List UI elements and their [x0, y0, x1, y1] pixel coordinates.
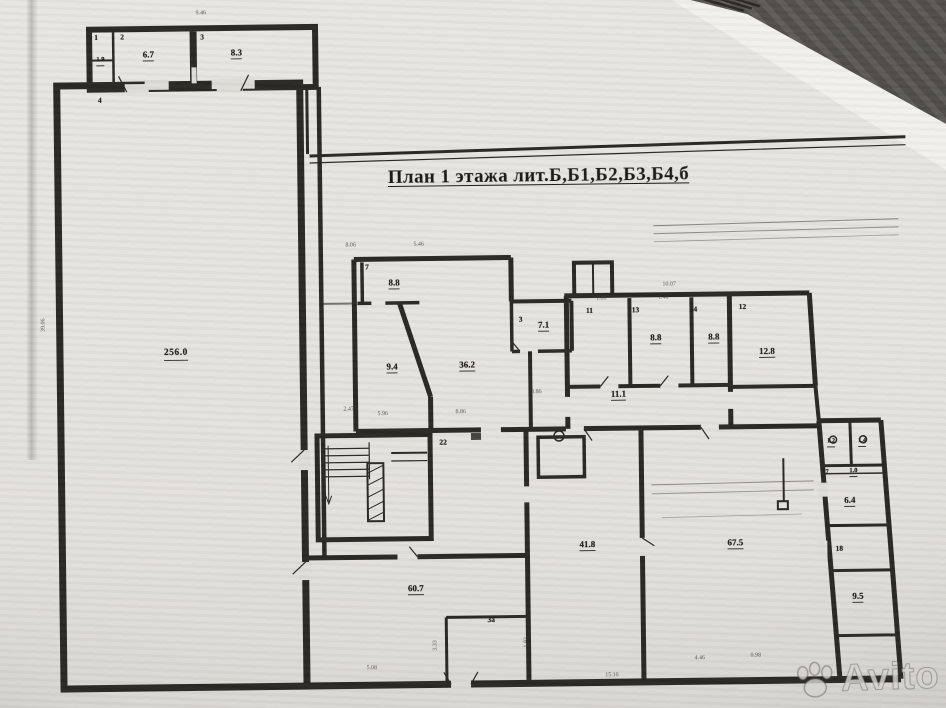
- dimension-label: 5.96: [377, 411, 388, 417]
- dimension-label: 4.46: [694, 655, 705, 661]
- room-number-label: 11: [586, 307, 593, 315]
- room-number-label: 14: [690, 306, 698, 314]
- room-number-label: 22: [439, 439, 447, 447]
- room-area-label: 9.4: [386, 362, 397, 373]
- room-area-label: 6.4: [844, 496, 855, 507]
- room-area-label: 12.8: [759, 347, 775, 358]
- room-area-label: 67.5: [727, 538, 743, 549]
- room-number-label: 18: [836, 545, 844, 553]
- room-area-label: 256.0: [164, 349, 188, 361]
- room-area-label: 1.9: [96, 57, 104, 66]
- dimension-label: 0.98: [750, 653, 761, 659]
- room-number-label: 3: [519, 316, 523, 324]
- dimension-label: 1.86: [596, 295, 607, 301]
- room-area-label: 36.2: [459, 360, 475, 371]
- room-area-label: 1.4: [858, 438, 866, 447]
- dimension-label: 39.06: [41, 318, 47, 332]
- room-area-label: 8.8: [650, 333, 661, 344]
- room-number-label: 2: [120, 33, 124, 41]
- dimension-label: 5.08: [367, 665, 378, 671]
- scanned-floorplan-photo: План 1 этажа лит.Б,Б1,Б2,Б3,Б4,б 1 2 3 4…: [0, 0, 946, 708]
- room-number-label: 7: [365, 264, 369, 272]
- dimension-label: 2.47: [343, 406, 354, 412]
- dimension-label: 5.46: [413, 242, 424, 248]
- room-number-label: 12: [739, 303, 747, 311]
- room-area-label: 41.8: [579, 540, 595, 551]
- room-number-label: 1: [94, 34, 98, 42]
- dimension-label: 1.93: [523, 637, 529, 648]
- floor-plan-drawing: [0, 0, 946, 708]
- dimension-label: 8.86: [455, 409, 466, 415]
- room-area-label: 7.1: [538, 321, 549, 332]
- room-number-label: 4: [98, 97, 102, 105]
- room-number-label: 17: [822, 469, 829, 476]
- dimension-label: 1.40: [658, 295, 669, 301]
- plan-title: План 1 этажа лит.Б,Б1,Б2,Б3,Б4,б: [388, 163, 690, 189]
- watermark-brand: Avito: [841, 654, 941, 700]
- room-number-label: 3: [200, 34, 204, 42]
- dimension-label: 9.46: [196, 10, 207, 16]
- room-number-label: 13: [632, 306, 640, 314]
- room-number-label: 3а: [487, 616, 495, 624]
- dimension-label: 10.07: [662, 282, 676, 288]
- paw-icon: [793, 660, 838, 702]
- dimension-label: 15.16: [605, 672, 619, 678]
- room-area-label: 1.0: [849, 468, 857, 477]
- avito-watermark: Avito: [793, 654, 941, 702]
- room-area-label: 8.3: [231, 48, 242, 59]
- dimension-label: 3.86: [531, 389, 542, 395]
- room-area-label: 1.2: [827, 438, 835, 447]
- room-area-label: 8.8: [708, 332, 719, 343]
- room-area-label: 9.5: [852, 592, 863, 603]
- dimension-label: 8.06: [345, 242, 356, 248]
- room-area-label: 11.1: [611, 390, 626, 401]
- floor-plan-layer: План 1 этажа лит.Б,Б1,Б2,Б3,Б4,б 1 2 3 4…: [0, 0, 946, 708]
- room-area-label: 60.7: [408, 584, 424, 595]
- dimension-label: 3.33: [432, 640, 438, 651]
- room-area-label: 6.7: [143, 50, 154, 61]
- room-area-label: 8.8: [388, 278, 399, 289]
